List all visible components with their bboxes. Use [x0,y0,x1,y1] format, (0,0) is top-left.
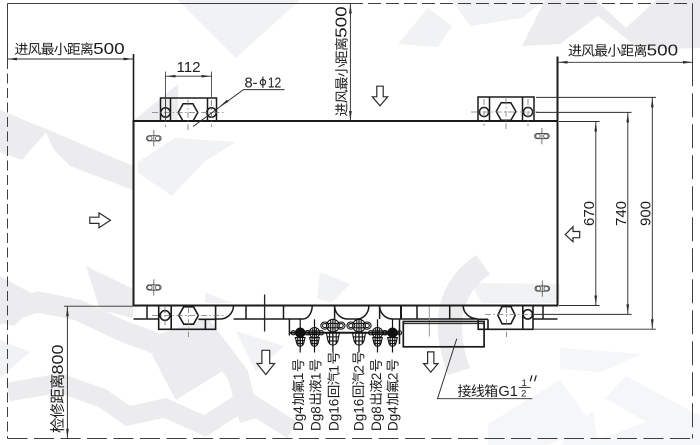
svg-text:500: 500 [647,43,679,60]
svg-text:2: 2 [386,373,401,381]
svg-text:12: 12 [268,76,282,92]
svg-text:670: 670 [581,201,598,226]
svg-text:112: 112 [176,59,200,76]
svg-text:500: 500 [93,41,125,58]
svg-text:Dg4: Dg4 [386,406,401,431]
svg-text:Dg4: Dg4 [291,406,306,431]
svg-text:Dg16: Dg16 [351,399,366,431]
svg-text:900: 900 [637,201,654,226]
svg-text:Dg8: Dg8 [369,406,384,431]
svg-text:G1: G1 [498,384,517,400]
svg-text:Dg16: Dg16 [327,399,342,431]
svg-text:1: 1 [291,373,306,381]
svg-text:740: 740 [613,201,630,226]
svg-text:2: 2 [351,365,366,373]
svg-text:2: 2 [369,373,384,381]
svg-text:1: 1 [327,365,342,373]
svg-text:8-: 8- [245,76,258,92]
svg-text:1: 1 [308,373,323,381]
svg-text:800: 800 [50,345,67,375]
svg-text:Dg8: Dg8 [308,406,323,431]
svg-text:500: 500 [334,6,351,38]
svg-text:2: 2 [521,389,526,400]
